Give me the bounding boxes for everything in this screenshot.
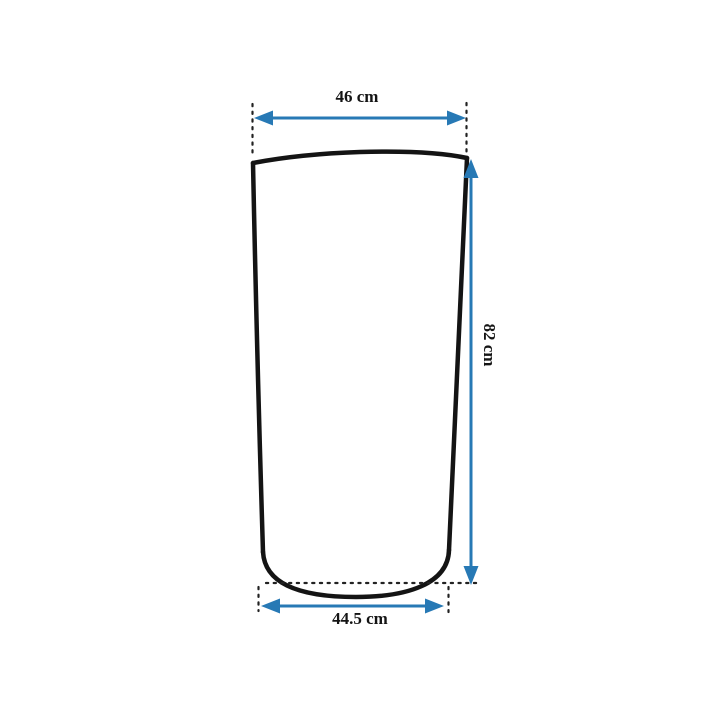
extension-lines	[253, 103, 480, 612]
vessel-bottom	[263, 550, 449, 597]
vessel-right-wall	[449, 158, 467, 550]
top-width-label: 46 cm	[336, 87, 379, 107]
arrowhead-left-icon	[254, 111, 273, 126]
vessel-rim	[253, 152, 467, 163]
height-label: 82 cm	[479, 324, 499, 367]
arrowhead-right-icon	[447, 111, 466, 126]
vessel-left-wall	[253, 163, 263, 552]
vessel-outline	[253, 152, 467, 597]
diagram-canvas: 46 cm 82 cm 44.5 cm	[0, 0, 720, 720]
bottom-width-label: 44.5 cm	[332, 609, 388, 629]
arrowhead-right-icon	[425, 599, 444, 614]
top-width-dimension-arrow	[254, 111, 466, 126]
arrowhead-left-icon	[261, 599, 280, 614]
